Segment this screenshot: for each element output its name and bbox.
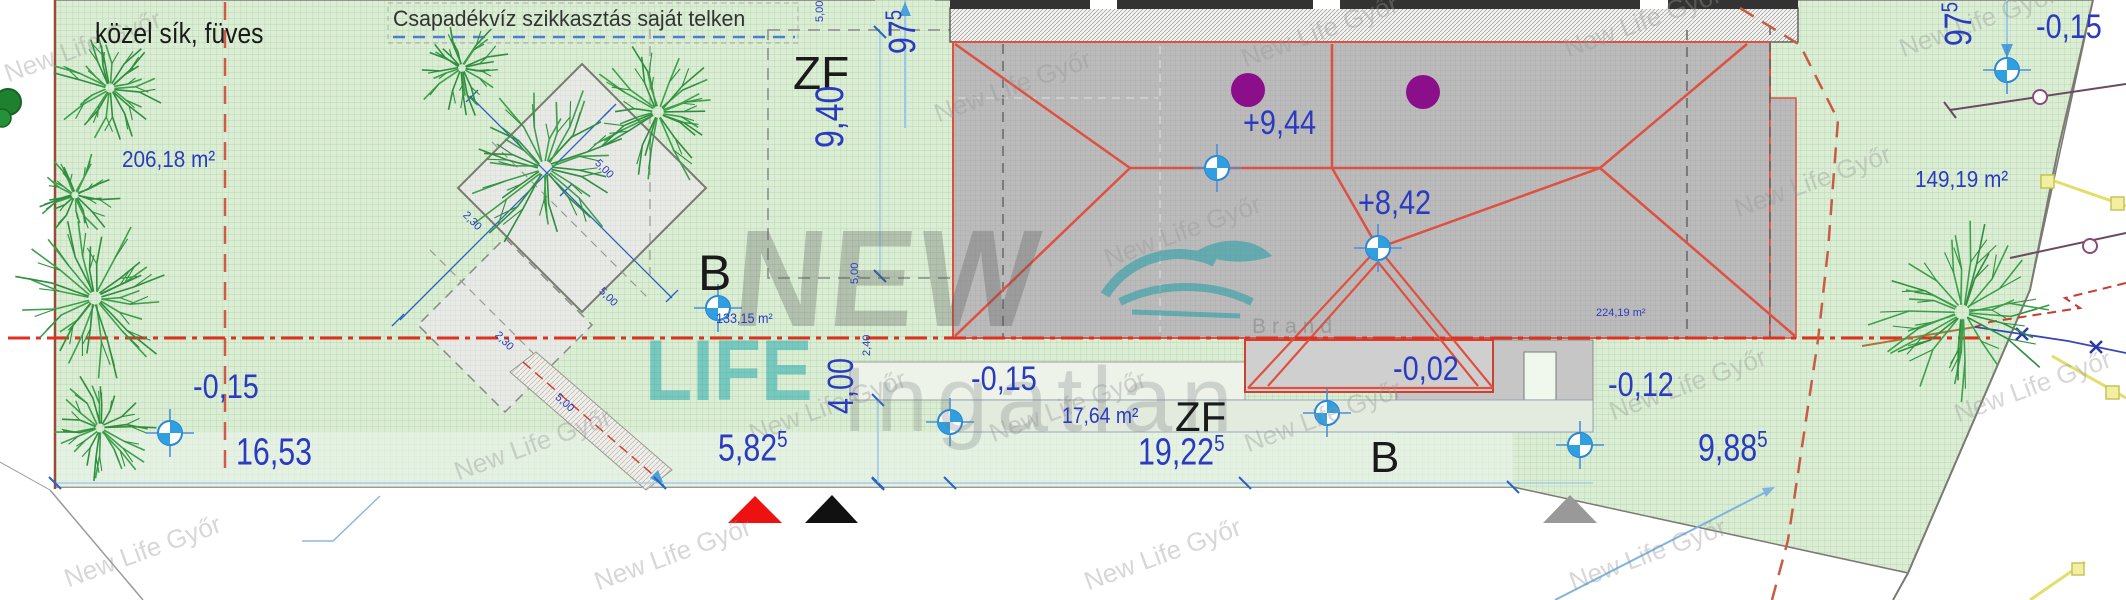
dimension-label: 975 [1938,2,1978,46]
area-label-roof: 224,19 m² [1596,308,1646,319]
dimension-label-small: 2,40 [862,335,873,356]
dimension-label: 19,225 [1138,432,1225,472]
area-label-parcel-left: 206,18 m² [122,148,215,171]
site-plan: NEW LIFE Ingatlan Brand New Life Győr Ne… [0,0,2126,600]
utility-node-icon [2033,90,2047,104]
dimension-label: 4,00 [823,358,859,414]
drainage-note: Csapadékvíz szikkasztás saját telken [393,8,745,30]
chimney-dot [1231,73,1265,107]
site-plan-drawing [0,0,2126,600]
zone-label-b-left: B [698,248,731,298]
dimension-label: 975 [882,10,922,54]
area-label-footprint: 133,15 m² [716,311,773,325]
benchmark-triangle-black [805,495,858,523]
elevation-label: -0,15 [193,370,259,404]
chimney-dot [1406,75,1440,109]
gas-marker-icon [2111,197,2124,210]
elevation-label: -0,02 [1393,352,1459,386]
elevation-label: -0,15 [2036,10,2102,44]
elevation-label: -0,12 [1608,368,1674,402]
bush [0,89,21,127]
terrain-note: közel sík, füves [95,20,264,49]
area-label-parcel-right: 149,19 m² [1915,168,2008,191]
gas-marker-icon [2072,563,2084,575]
watermark-text: Brand [1252,315,1338,339]
dimension-label-small: 5,00 [815,1,826,22]
area-label-terrace: 17,64 m² [1062,405,1138,427]
dimension-label-small: 5,00 [850,263,861,284]
gas-marker-icon [2106,386,2119,399]
zone-label-b-bottom: B [1370,436,1399,480]
elevation-label: -0,15 [971,362,1037,396]
elevation-label: +8,42 [1358,186,1431,220]
dimension-label: 5,825 [718,428,788,468]
elevation-label: +9,44 [1243,106,1316,140]
dimension-label: 9,885 [1698,428,1768,468]
gas-marker-icon [2041,175,2054,188]
dimension-label: 16,53 [236,432,312,472]
dimension-label: 9,40 [810,86,850,148]
utility-node-icon [2083,239,2097,253]
